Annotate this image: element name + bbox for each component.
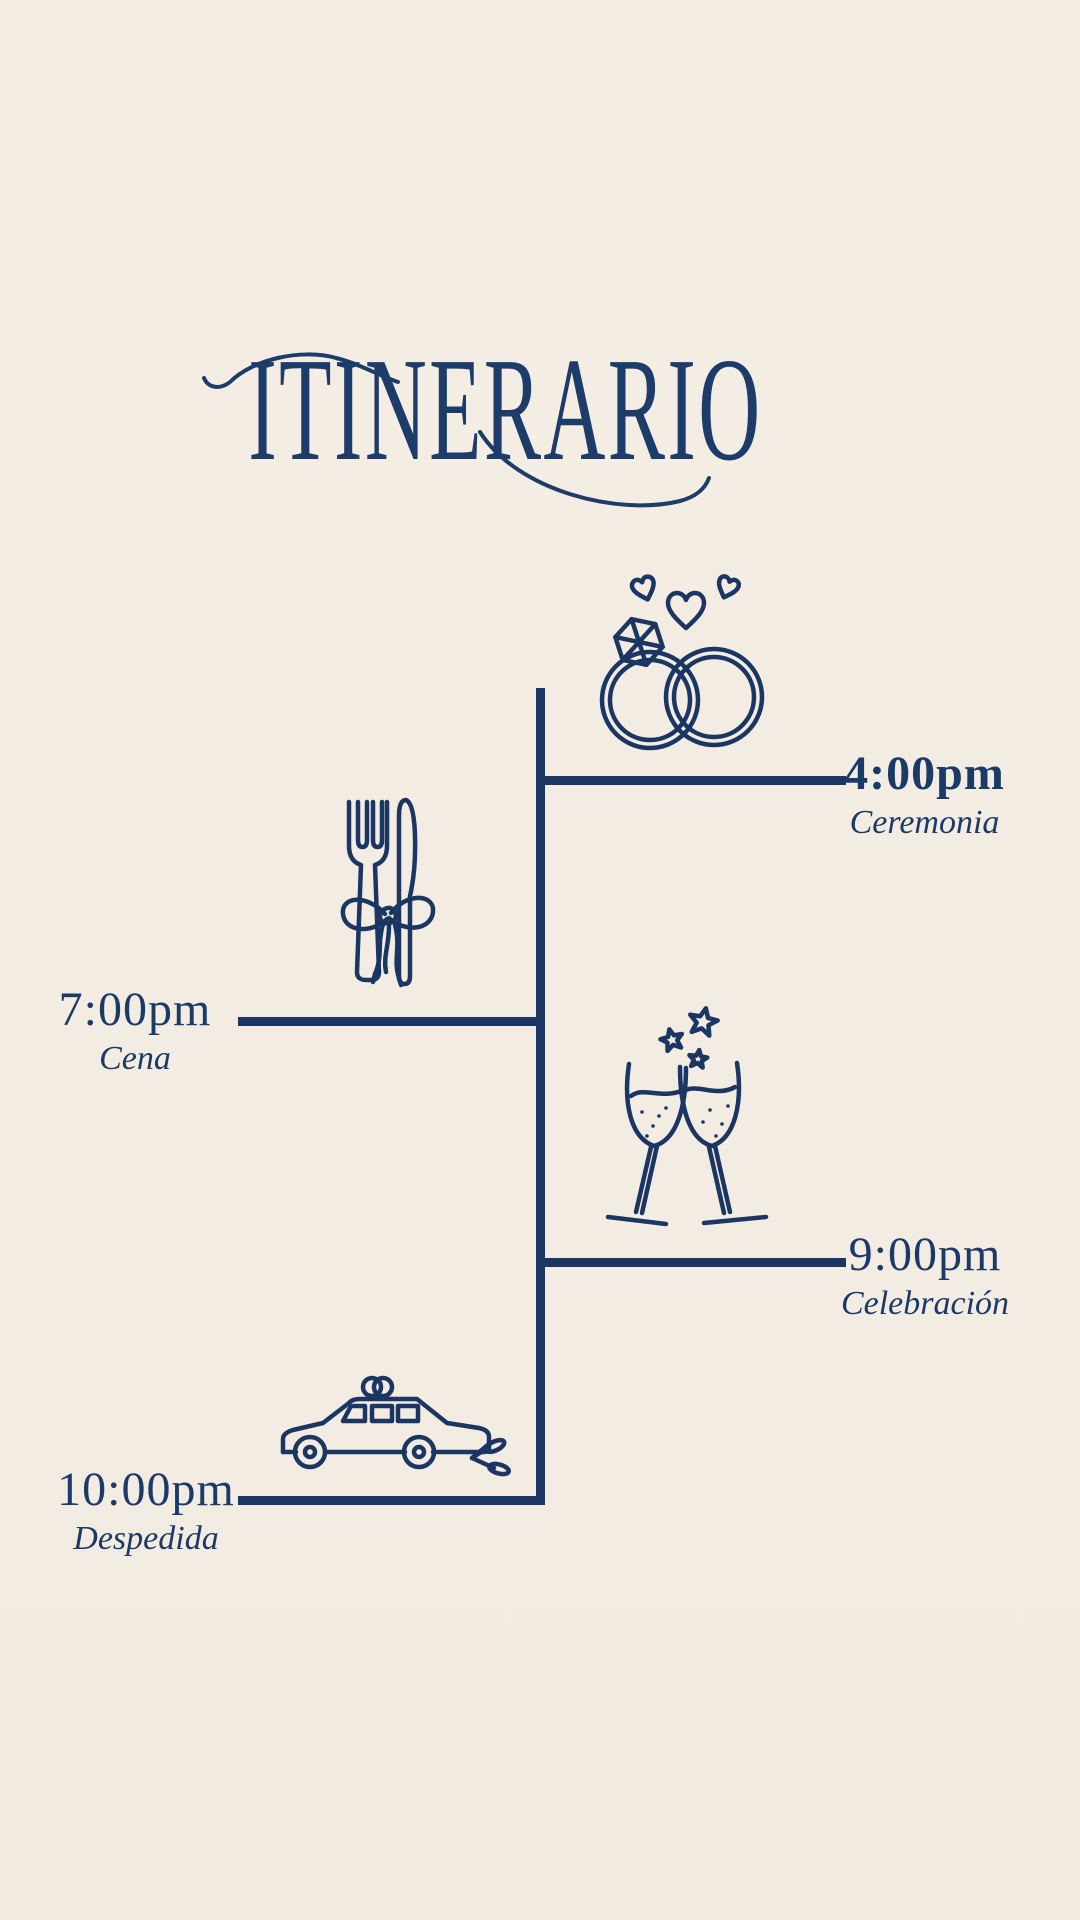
- timeline-branch-despedida: [238, 1496, 541, 1505]
- timeline-branch-cena: [238, 1017, 541, 1026]
- event-ceremonia: 4:00pm Ceremonia: [842, 749, 1007, 842]
- wedding-car-icon: [272, 1372, 512, 1484]
- event-label: Celebración: [835, 1284, 1015, 1323]
- event-time: 4:00pm: [842, 749, 1007, 799]
- page-title: ITINERARIO: [0, 336, 1010, 484]
- champagne-toast-icon: [598, 988, 778, 1238]
- wedding-rings-icon: [580, 558, 780, 763]
- event-label: Despedida: [51, 1519, 241, 1558]
- event-time: 9:00pm: [835, 1230, 1015, 1280]
- event-label: Ceremonia: [842, 803, 1007, 842]
- page-title-text: ITINERARIO: [248, 336, 762, 484]
- cutlery-bow-icon: [333, 788, 483, 998]
- itinerary-poster: ITINERARIO: [0, 0, 1080, 1920]
- timeline-branch-celebracion: [540, 1258, 846, 1267]
- event-despedida: 10:00pm Despedida: [51, 1465, 241, 1558]
- event-time: 7:00pm: [40, 985, 230, 1035]
- timeline-spine: [536, 688, 545, 1505]
- event-time: 10:00pm: [51, 1465, 241, 1515]
- timeline-branch-ceremonia: [540, 776, 846, 785]
- event-label: Cena: [40, 1039, 230, 1078]
- event-cena: 7:00pm Cena: [40, 985, 230, 1078]
- event-celebracion: 9:00pm Celebración: [835, 1230, 1015, 1323]
